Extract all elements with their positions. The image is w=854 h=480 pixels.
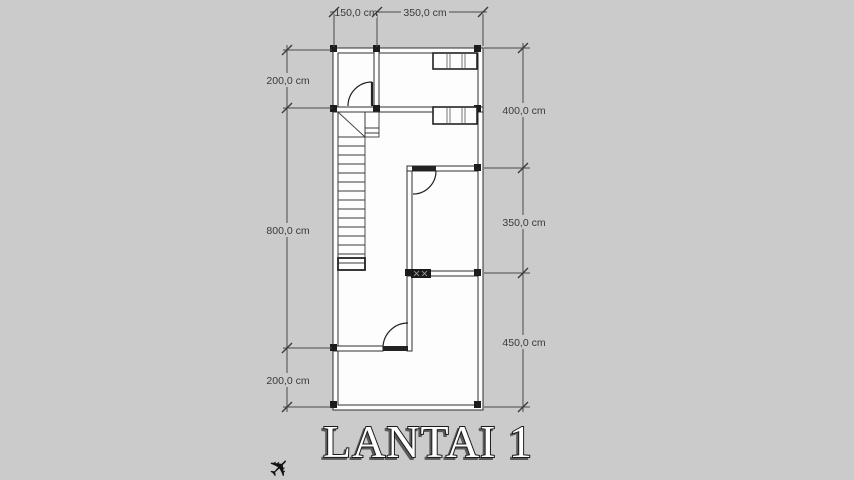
cabinet-middle-right (433, 107, 477, 124)
cabinet-top-right (433, 53, 477, 69)
dim-label-top-350: 350,0 cm (403, 7, 446, 19)
dimension-left: 200,0 cm 800,0 cm 200,0 cm (264, 45, 332, 412)
dimension-top: 150,0 cm 350,0 cm (329, 5, 488, 47)
dim-label-right-400: 400,0 cm (502, 105, 545, 117)
window-symbol (411, 269, 431, 278)
floor-title-text: LANTAI 1 (323, 416, 533, 467)
wall-horizontal-lower (333, 346, 383, 351)
floor-plan-screenshot: 150,0 cm 350,0 cm 200,0 cm 800,0 cm 200,… (0, 0, 854, 480)
floor-title: LANTAI 1 LANTAI 1 (321, 416, 533, 469)
floor-plan-canvas: 150,0 cm 350,0 cm 200,0 cm 800,0 cm 200,… (0, 0, 854, 480)
dim-label-left-800: 800,0 cm (266, 225, 309, 237)
door-leaf (412, 166, 436, 171)
dim-label-right-350: 350,0 cm (502, 217, 545, 229)
dim-label-left-200b: 200,0 cm (266, 375, 309, 387)
door-leaf (383, 346, 408, 351)
dim-label-right-450: 450,0 cm (502, 337, 545, 349)
wall-vertical-top-room (374, 48, 379, 112)
dim-label-top-150: 150,0 cm (334, 7, 377, 19)
dimension-right: 400,0 cm 350,0 cm 450,0 cm (484, 43, 547, 412)
plane-icon: ✈ (261, 449, 298, 480)
dim-label-left-200a: 200,0 cm (266, 75, 309, 87)
